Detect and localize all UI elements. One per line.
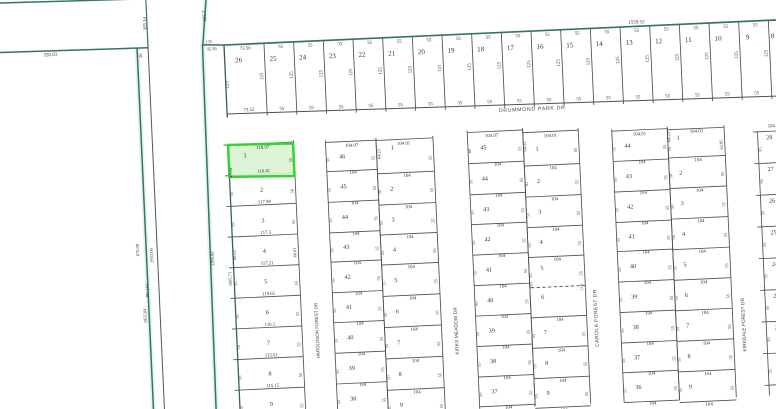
svg-text:73.52: 73.52	[243, 108, 255, 114]
svg-text:55: 55	[695, 93, 701, 98]
svg-text:104.01: 104.01	[544, 134, 558, 140]
svg-text:104: 104	[647, 342, 655, 347]
svg-text:37: 37	[634, 354, 640, 361]
svg-text:10: 10	[714, 34, 722, 42]
svg-text:55: 55	[606, 96, 612, 101]
svg-text:670.09: 670.09	[135, 243, 141, 256]
svg-text:104: 104	[701, 311, 709, 316]
svg-text:55: 55	[546, 98, 552, 103]
svg-text:125: 125	[675, 53, 680, 61]
svg-text:118.97: 118.97	[256, 145, 270, 151]
svg-text:104: 104	[549, 166, 557, 171]
svg-text:4: 4	[682, 231, 685, 238]
svg-text:26: 26	[235, 56, 243, 64]
svg-text:64.23: 64.23	[522, 141, 527, 152]
svg-text:18: 18	[477, 45, 485, 53]
svg-text:5: 5	[540, 265, 543, 272]
svg-text:14: 14	[596, 40, 604, 48]
svg-text:115.61: 115.61	[265, 353, 279, 359]
svg-text:24: 24	[772, 261, 776, 268]
svg-text:104: 104	[551, 197, 559, 202]
svg-text:22: 22	[358, 51, 366, 59]
svg-text:20: 20	[418, 48, 426, 56]
svg-text:42: 42	[484, 236, 490, 243]
svg-text:104: 104	[502, 345, 510, 350]
svg-text:117.5: 117.5	[260, 231, 271, 237]
svg-text:104: 104	[644, 281, 652, 286]
svg-text:1: 1	[535, 146, 538, 153]
svg-text:40: 40	[630, 263, 636, 270]
svg-text:104: 104	[641, 221, 649, 226]
svg-text:38: 38	[350, 395, 356, 402]
svg-text:38: 38	[632, 324, 638, 331]
svg-text:8: 8	[268, 370, 271, 377]
svg-text:55: 55	[337, 42, 343, 47]
svg-text:55: 55	[604, 30, 610, 35]
svg-text:55: 55	[339, 105, 345, 110]
svg-text:125: 125	[225, 81, 230, 89]
svg-text:104: 104	[559, 379, 567, 384]
svg-text:43: 43	[626, 173, 632, 180]
svg-text:125: 125	[705, 52, 710, 60]
svg-text:104: 104	[497, 223, 505, 228]
svg-text:104: 104	[358, 352, 366, 357]
svg-text:1: 1	[243, 152, 247, 159]
svg-text:104: 104	[409, 296, 417, 301]
svg-text:105.7: 105.7	[203, 10, 209, 22]
svg-text:110: 110	[579, 284, 584, 290]
svg-text:125: 125	[616, 56, 621, 64]
svg-text:55: 55	[428, 102, 434, 107]
svg-text:55: 55	[515, 34, 521, 39]
svg-text:9: 9	[689, 384, 692, 391]
svg-text:104: 104	[648, 372, 656, 377]
svg-text:55: 55	[279, 107, 285, 112]
svg-text:104: 104	[703, 341, 711, 346]
svg-text:1933.06: 1933.06	[149, 247, 155, 263]
svg-text:119.65: 119.65	[262, 292, 276, 298]
svg-text:11: 11	[685, 36, 693, 44]
svg-text:7: 7	[544, 329, 547, 336]
svg-text:24: 24	[299, 53, 307, 61]
svg-text:9: 9	[270, 401, 273, 408]
svg-text:104: 104	[499, 284, 507, 289]
svg-text:125: 125	[497, 61, 502, 69]
svg-text:55: 55	[634, 29, 640, 34]
svg-text:17: 17	[507, 44, 515, 52]
svg-text:104: 104	[556, 318, 564, 323]
svg-text:49.04: 49.04	[228, 167, 233, 178]
svg-text:104: 104	[406, 235, 414, 240]
svg-text:104: 104	[494, 162, 502, 167]
svg-text:2: 2	[390, 186, 393, 193]
svg-text:55: 55	[753, 23, 759, 28]
svg-text:42: 42	[344, 274, 350, 281]
svg-text:9: 9	[400, 402, 403, 409]
svg-text:125: 125	[349, 68, 354, 76]
svg-text:55: 55	[665, 94, 671, 99]
svg-text:28: 28	[766, 134, 772, 141]
svg-text:118.41: 118.41	[257, 169, 271, 175]
svg-text:40: 40	[487, 297, 493, 304]
svg-text:4: 4	[263, 248, 266, 255]
svg-text:55: 55	[308, 44, 314, 49]
svg-text:55: 55	[426, 38, 432, 43]
svg-text:6: 6	[265, 309, 268, 316]
svg-text:125: 125	[290, 71, 295, 79]
svg-text:1559.52: 1559.52	[628, 20, 645, 26]
svg-text:104: 104	[349, 171, 357, 176]
svg-text:39: 39	[631, 293, 637, 300]
svg-text:55: 55	[636, 95, 642, 100]
svg-text:13: 13	[625, 38, 633, 46]
svg-text:104: 104	[697, 219, 705, 224]
svg-text:55: 55	[576, 97, 582, 102]
svg-text:43: 43	[483, 206, 489, 213]
svg-text:16: 16	[536, 43, 544, 51]
svg-text:7: 7	[686, 323, 689, 330]
svg-text:43: 43	[343, 244, 349, 251]
svg-text:55: 55	[456, 37, 462, 42]
svg-text:38: 38	[490, 358, 496, 365]
svg-text:135: 135	[205, 39, 213, 44]
svg-text:115.15: 115.15	[266, 384, 280, 390]
svg-text:125: 125	[764, 49, 769, 57]
svg-text:45: 45	[480, 144, 486, 151]
svg-text:8: 8	[545, 360, 548, 367]
svg-text:3: 3	[391, 216, 394, 223]
svg-text:12: 12	[655, 37, 663, 45]
svg-text:125: 125	[408, 65, 413, 73]
svg-text:104: 104	[501, 315, 509, 320]
svg-text:3: 3	[261, 217, 264, 224]
svg-text:104: 104	[405, 205, 413, 210]
svg-text:104: 104	[558, 348, 566, 353]
svg-text:60.01: 60.01	[292, 247, 297, 257]
svg-text:104.07: 104.07	[345, 143, 359, 149]
svg-text:125: 125	[527, 60, 532, 68]
svg-text:23: 23	[329, 52, 337, 60]
svg-text:104: 104	[554, 258, 562, 263]
svg-text:104: 104	[498, 254, 506, 259]
svg-text:7: 7	[397, 340, 400, 347]
svg-text:125: 125	[319, 69, 324, 77]
svg-text:4: 4	[540, 239, 543, 246]
svg-text:1: 1	[676, 134, 679, 141]
svg-text:104: 104	[696, 189, 704, 194]
svg-text:55: 55	[723, 25, 729, 30]
svg-text:6: 6	[685, 292, 688, 299]
svg-text:26: 26	[769, 198, 775, 205]
svg-text:25: 25	[770, 229, 776, 236]
svg-text:6: 6	[541, 294, 544, 301]
svg-text:55: 55	[725, 92, 731, 97]
svg-text:110: 110	[528, 282, 533, 288]
svg-text:116.1: 116.1	[265, 322, 276, 328]
svg-text:104.03: 104.03	[690, 129, 704, 135]
svg-text:104: 104	[495, 194, 503, 199]
svg-text:44: 44	[342, 214, 348, 221]
svg-text:104: 104	[700, 280, 708, 285]
svg-text:104: 104	[505, 406, 513, 409]
svg-text:9: 9	[546, 390, 549, 397]
svg-text:55: 55	[487, 100, 493, 105]
svg-text:117.21: 117.21	[261, 261, 275, 267]
svg-text:PR 110: PR 110	[144, 283, 150, 297]
svg-text:125: 125	[260, 72, 265, 80]
svg-text:36: 36	[635, 384, 641, 391]
svg-text:4: 4	[393, 246, 396, 253]
svg-text:125: 125	[586, 57, 591, 65]
svg-text:104: 104	[354, 261, 362, 266]
svg-text:41: 41	[628, 233, 634, 240]
svg-text:125: 125	[379, 67, 384, 75]
svg-text:104: 104	[412, 359, 420, 364]
svg-text:330.93: 330.93	[43, 53, 57, 59]
svg-text:105.14: 105.14	[143, 16, 149, 30]
svg-text:5: 5	[394, 277, 397, 284]
svg-text:104: 104	[359, 383, 367, 388]
svg-text:104: 104	[699, 250, 707, 255]
svg-text:104: 104	[645, 311, 653, 316]
svg-text:1292.92: 1292.92	[210, 251, 216, 266]
svg-text:73.50: 73.50	[240, 46, 252, 52]
svg-text:55: 55	[309, 106, 315, 111]
svg-text:1005.71: 1005.71	[227, 272, 233, 286]
svg-text:125: 125	[438, 64, 443, 72]
svg-text:104: 104	[640, 191, 648, 196]
svg-text:55: 55	[278, 45, 284, 50]
svg-text:45: 45	[340, 183, 346, 190]
svg-text:2: 2	[537, 178, 540, 185]
svg-text:55: 55	[693, 26, 699, 31]
svg-text:19: 19	[447, 47, 455, 55]
svg-text:117.98: 117.98	[258, 200, 272, 206]
svg-text:2: 2	[679, 170, 682, 177]
svg-text:3: 3	[680, 200, 683, 207]
svg-text:125: 125	[468, 63, 473, 71]
svg-text:55: 55	[397, 39, 403, 44]
svg-text:104.01: 104.01	[633, 132, 647, 138]
svg-text:55: 55	[545, 33, 551, 38]
svg-text:42.36: 42.36	[207, 46, 218, 51]
svg-text:104: 104	[403, 174, 411, 179]
svg-text:25: 25	[269, 55, 277, 63]
svg-text:1955.04: 1955.04	[142, 308, 148, 324]
svg-text:104: 104	[408, 265, 416, 270]
svg-text:5: 5	[264, 278, 267, 285]
svg-text:55: 55	[457, 101, 463, 106]
svg-text:39: 39	[349, 365, 355, 372]
svg-text:104.05: 104.05	[768, 124, 776, 130]
svg-text:63.95: 63.95	[718, 139, 723, 150]
svg-text:104.01: 104.01	[397, 141, 411, 147]
svg-text:46: 46	[339, 153, 345, 160]
svg-text:44: 44	[624, 143, 630, 150]
svg-text:55: 55	[754, 91, 760, 96]
svg-text:104.07: 104.07	[485, 134, 499, 140]
svg-text:55: 55	[398, 103, 404, 108]
svg-text:55: 55	[367, 41, 373, 46]
svg-text:104: 104	[504, 376, 512, 381]
svg-text:60.03: 60.03	[232, 249, 237, 260]
svg-text:64.23: 64.23	[376, 148, 381, 159]
svg-text:104: 104	[352, 232, 360, 237]
svg-text:104: 104	[694, 158, 702, 163]
svg-text:104: 104	[413, 390, 421, 395]
svg-text:2: 2	[260, 187, 263, 194]
svg-text:64.23: 64.23	[666, 131, 671, 142]
svg-text:125: 125	[557, 58, 562, 66]
svg-text:40: 40	[347, 334, 353, 341]
svg-text:104: 104	[638, 160, 646, 165]
svg-text:5: 5	[683, 261, 686, 268]
svg-text:55: 55	[664, 27, 670, 32]
svg-text:104: 104	[351, 201, 359, 206]
svg-text:104: 104	[356, 322, 364, 327]
svg-text:15: 15	[566, 41, 574, 49]
svg-text:8: 8	[398, 371, 401, 378]
svg-text:104: 104	[706, 403, 714, 408]
svg-text:1: 1	[391, 144, 394, 151]
svg-text:21: 21	[388, 49, 396, 57]
svg-text:104: 104	[410, 328, 418, 333]
svg-text:6: 6	[396, 308, 399, 315]
svg-text:37: 37	[491, 388, 497, 395]
svg-text:104: 104	[552, 228, 560, 233]
svg-text:104: 104	[642, 250, 650, 255]
svg-text:55: 55	[575, 31, 581, 36]
svg-text:41: 41	[486, 267, 492, 274]
svg-text:7: 7	[267, 340, 270, 347]
svg-text:44: 44	[482, 175, 488, 182]
svg-text:55: 55	[486, 35, 492, 40]
svg-text:104: 104	[649, 401, 657, 406]
svg-text:125: 125	[735, 50, 740, 58]
svg-text:55: 55	[368, 104, 374, 109]
svg-text:3: 3	[538, 209, 541, 216]
svg-text:104: 104	[355, 292, 363, 297]
svg-text:104: 104	[704, 372, 712, 377]
svg-text:39: 39	[489, 327, 495, 334]
svg-text:41: 41	[346, 304, 352, 311]
svg-text:8: 8	[687, 353, 690, 360]
svg-text:125: 125	[646, 54, 651, 62]
svg-text:55: 55	[517, 99, 523, 104]
svg-text:27: 27	[767, 166, 773, 173]
svg-text:42: 42	[627, 203, 633, 210]
